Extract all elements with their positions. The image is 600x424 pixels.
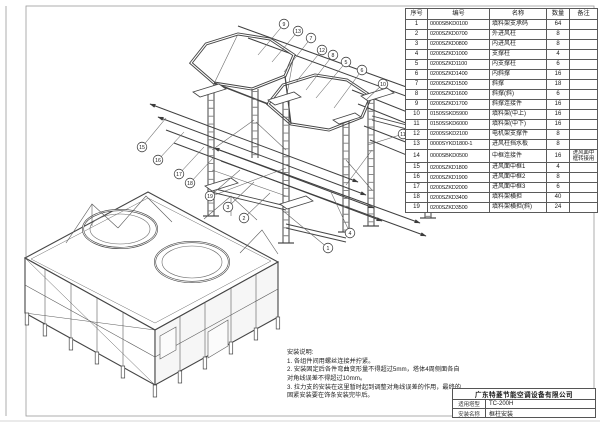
- part-cell: 11: [406, 120, 428, 130]
- part-cell: 斜撑连接件: [490, 100, 547, 110]
- part-cell: 0200SZKD1600: [428, 90, 490, 100]
- part-cell: 0200SZKD3400: [428, 193, 490, 203]
- part-cell: 0200SSKD2100: [428, 130, 490, 140]
- support-columns: [203, 89, 436, 243]
- part-cell: 外进风柱: [490, 30, 547, 40]
- part-cell: 0200SZKD1700: [428, 100, 490, 110]
- part-cell: [570, 140, 598, 150]
- part-row: 150200SZKD1800进风面中框14: [406, 163, 598, 173]
- part-row: 20200SZKD0700外进风柱8: [406, 30, 598, 40]
- callout-number: 15: [139, 145, 145, 151]
- part-cell: 内斜撑: [490, 70, 547, 80]
- part-cell: 16: [547, 120, 570, 130]
- cross-beam: [211, 192, 286, 210]
- leader-line: [179, 147, 204, 174]
- tower-leg: [203, 357, 207, 369]
- beam-caps: [193, 84, 394, 209]
- part-cell: [570, 203, 598, 213]
- tower-leg: [25, 313, 29, 325]
- part-cell: 8: [547, 130, 570, 140]
- part-cell: 0200SZKD1500: [428, 80, 490, 90]
- leader-line: [306, 55, 333, 90]
- part-cell: 0150SSKD6000: [428, 120, 490, 130]
- part-cell: 斜撑: [490, 80, 547, 90]
- part-row: 100150SSKD5900填料架(中上)16: [406, 110, 598, 120]
- part-cell: [570, 100, 598, 110]
- part-cell: 0200SZKD0800: [428, 40, 490, 50]
- part-cell: [570, 20, 598, 30]
- part-cell: [570, 183, 598, 193]
- callout-number: 10: [380, 82, 386, 88]
- tower-leg: [69, 338, 73, 350]
- part-cell: 40: [547, 193, 570, 203]
- part-cell: 24: [547, 203, 570, 213]
- support-column: [338, 117, 354, 232]
- support-column: [363, 93, 379, 226]
- tower-leg: [43, 324, 47, 336]
- part-cell: 6: [547, 90, 570, 100]
- company-name: 广东特菱节能空调设备有限公司: [453, 389, 595, 400]
- title-block-row: 适用塔型 TC-200H: [453, 400, 595, 408]
- part-cell: 进风面中框转接用: [570, 150, 598, 163]
- part-cell: 0000SBKD0500: [428, 150, 490, 163]
- part-cell: 8: [406, 90, 428, 100]
- part-row: 170200SZKD2000进风面中框36: [406, 183, 598, 193]
- leader-line: [158, 132, 184, 160]
- part-cell: [570, 173, 598, 183]
- fan-deck-ring-a: [191, 34, 294, 89]
- part-cell: 0150SSKD5900: [428, 110, 490, 120]
- cross-beam: [286, 224, 346, 238]
- part-cell: 0200SZKD0700: [428, 30, 490, 40]
- part-cell: 8: [547, 30, 570, 40]
- part-row: 40200SZKD1000支撑柱4: [406, 50, 598, 60]
- part-cell: 12: [406, 130, 428, 140]
- column-header: 编号: [428, 9, 490, 20]
- tower-leg: [178, 371, 182, 383]
- part-row: 160200SZKD1900进风面中框28: [406, 173, 598, 183]
- part-cell: 6: [406, 70, 428, 80]
- beam-cap: [280, 196, 313, 209]
- part-cell: 13: [406, 140, 428, 150]
- tower-leg: [254, 328, 258, 340]
- callout-number: 2: [243, 216, 246, 222]
- part-cell: [570, 90, 598, 100]
- callout-number: 7: [310, 36, 313, 42]
- part-cell: 进风面中框1: [490, 163, 547, 173]
- column-header: 序号: [406, 9, 428, 20]
- part-cell: 7: [406, 80, 428, 90]
- callout-number: 5: [345, 60, 348, 66]
- tower-leg: [95, 352, 99, 364]
- part-cell: 5: [406, 60, 428, 70]
- part-cell: [570, 70, 598, 80]
- part-cell: 进风面中框3: [490, 183, 547, 193]
- part-row: 70200SZKD1500斜撑18: [406, 80, 598, 90]
- part-cell: 0200SZKD1800: [428, 163, 490, 173]
- callout-number: 8: [332, 53, 335, 59]
- part-cell: [570, 193, 598, 203]
- part-cell: 16: [547, 110, 570, 120]
- part-cell: 进风面中框2: [490, 173, 547, 183]
- fill-rack-rod: [221, 161, 426, 236]
- part-cell: 8: [547, 140, 570, 150]
- part-cell: 0200SZKD3500: [428, 203, 490, 213]
- title-block: 广东特菱节能空调设备有限公司 适用塔型 TC-200H 安装名称 框柱安装: [452, 388, 596, 418]
- install-name-label: 安装名称: [453, 409, 486, 418]
- callout-number: 9: [283, 22, 286, 28]
- part-cell: 8: [547, 173, 570, 183]
- part-cell: 内进风柱: [490, 40, 547, 50]
- column-header: 数量: [547, 9, 570, 20]
- part-row: 140000SBKD0500中框连接件16进风面中框转接用: [406, 150, 598, 163]
- part-row: 10000SBKD0100填料架支承码64: [406, 20, 598, 30]
- fan-deck-rings: [191, 34, 371, 130]
- part-cell: 4: [547, 163, 570, 173]
- parts-table-header: 序号编号名称数量备注: [406, 9, 598, 20]
- part-cell: 18: [547, 80, 570, 90]
- tower-leg: [276, 317, 280, 329]
- part-cell: 16: [547, 150, 570, 163]
- part-cell: [570, 50, 598, 60]
- install-name-value: 框柱安装: [486, 409, 595, 418]
- part-cell: 1: [406, 20, 428, 30]
- title-block-row: 安装名称 框柱安装: [453, 408, 595, 418]
- note-item: 2. 安装固定后各件弯曲变形量不得超过5mm，塔体4周侧面各自对角线误差不得超过…: [287, 366, 463, 383]
- part-cell: 填料架支承码: [490, 20, 547, 30]
- part-cell: 电机架支撑件: [490, 130, 547, 140]
- beam-cap: [268, 92, 301, 105]
- part-row: 80200SZKD1600斜撑(斜)6: [406, 90, 598, 100]
- callout-number: 3: [227, 205, 230, 211]
- part-cell: 进风柱挡水板: [490, 140, 547, 150]
- leader-line: [258, 24, 284, 55]
- leader-line: [142, 118, 166, 147]
- part-cell: 9: [406, 100, 428, 110]
- part-cell: 内支撑柱: [490, 60, 547, 70]
- part-row: 30200SZKD0800内进风柱8: [406, 40, 598, 50]
- part-row: 50200SZKD1100内支撑柱6: [406, 60, 598, 70]
- part-cell: 填料架(中下): [490, 120, 547, 130]
- part-row: 190200SZKD3500填料架横担(斜)24: [406, 203, 598, 213]
- beam-cap: [193, 84, 226, 97]
- callout-number: 18: [187, 181, 193, 187]
- cross-beam: [286, 228, 346, 242]
- part-cell: 6: [547, 183, 570, 193]
- part-cell: [570, 40, 598, 50]
- part-row: 130000SYKD1800-1进风柱挡水板8: [406, 140, 598, 150]
- part-cell: 0200SZKD1100: [428, 60, 490, 70]
- part-cell: 3: [406, 40, 428, 50]
- part-cell: 17: [406, 183, 428, 193]
- part-cell: 64: [547, 20, 570, 30]
- part-cell: 中框连接件: [490, 150, 547, 163]
- callout-number: 19: [207, 194, 213, 200]
- callout-number: 17: [176, 172, 182, 178]
- part-cell: 0000SBKD0100: [428, 20, 490, 30]
- callout-number: 16: [155, 158, 161, 164]
- tower-body: [25, 192, 280, 397]
- part-row: 110150SSKD6000填料架(中下)16: [406, 120, 598, 130]
- part-cell: 2: [406, 30, 428, 40]
- tower-leg: [153, 385, 157, 397]
- installation-notes: 安装说明: 1. 各组件间用螺丝连接并拧紧。 2. 安装固定后各件弯曲变形量不得…: [287, 349, 463, 401]
- part-cell: 填料架(中上): [490, 110, 547, 120]
- fill-rack-rod: [214, 148, 420, 223]
- part-cell: 0000SYKD1800-1: [428, 140, 490, 150]
- part-cell: 0200SZKD2000: [428, 183, 490, 193]
- part-cell: 14: [406, 150, 428, 163]
- tower-model-value: TC-200H: [486, 400, 595, 408]
- part-cell: 填料架横担: [490, 193, 547, 203]
- part-cell: 19: [406, 203, 428, 213]
- leader-line: [228, 182, 254, 207]
- fan-deck-ring-a-inner: [191, 34, 294, 89]
- part-cell: 0200SZKD1900: [428, 173, 490, 183]
- callout-number: 1: [327, 246, 330, 252]
- part-cell: 6: [547, 60, 570, 70]
- callout-number: 6: [361, 68, 364, 74]
- part-cell: 0200SZKD1400: [428, 70, 490, 80]
- part-row: 90200SZKD1700斜撑连接件16: [406, 100, 598, 110]
- tower-leg: [229, 342, 233, 354]
- part-cell: 16: [547, 70, 570, 80]
- part-cell: 填料架横担(斜): [490, 203, 547, 213]
- beam-cap: [205, 178, 238, 191]
- beam-cap: [361, 88, 394, 101]
- callout-number: 13: [295, 29, 301, 35]
- support-column: [252, 89, 258, 158]
- part-cell: [570, 130, 598, 140]
- part-cell: 10: [406, 110, 428, 120]
- column-header: 备注: [570, 9, 598, 20]
- part-cell: 16: [547, 100, 570, 110]
- part-cell: 8: [547, 40, 570, 50]
- part-row: 60200SZKD1400内斜撑16: [406, 70, 598, 80]
- part-cell: 4: [406, 50, 428, 60]
- part-cell: [570, 30, 598, 40]
- notes-title: 安装说明:: [287, 349, 463, 358]
- callout-number: 12: [319, 48, 325, 54]
- parts-table: 序号编号名称数量备注 10000SBKD0100填料架支承码6420200SZK…: [405, 8, 598, 213]
- part-cell: [570, 163, 598, 173]
- drawing-sheet: 913712856101115161718193241 序号编号名称数量备注 1…: [0, 0, 600, 424]
- part-cell: 0200SZKD1000: [428, 50, 490, 60]
- part-cell: 支撑柱: [490, 50, 547, 60]
- part-row: 180200SZKD3400填料架横担40: [406, 193, 598, 203]
- part-cell: 18: [406, 193, 428, 203]
- part-cell: [570, 110, 598, 120]
- part-row: 120200SSKD2100电机架支撑件8: [406, 130, 598, 140]
- note-item: 3. 拉力支的安装在这里暂时起到调整对角线误差的作用，最终的固紧安装要在饰条安装…: [287, 384, 463, 401]
- part-cell: [570, 60, 598, 70]
- part-cell: 15: [406, 163, 428, 173]
- part-cell: [570, 80, 598, 90]
- tower-leg: [121, 366, 125, 378]
- part-cell: 16: [406, 173, 428, 183]
- part-cell: 4: [547, 50, 570, 60]
- part-cell: 斜撑(斜): [490, 90, 547, 100]
- callout-number: 4: [349, 231, 352, 237]
- part-cell: [570, 120, 598, 130]
- column-header: 名称: [490, 9, 547, 20]
- tower-model-label: 适用塔型: [453, 400, 486, 408]
